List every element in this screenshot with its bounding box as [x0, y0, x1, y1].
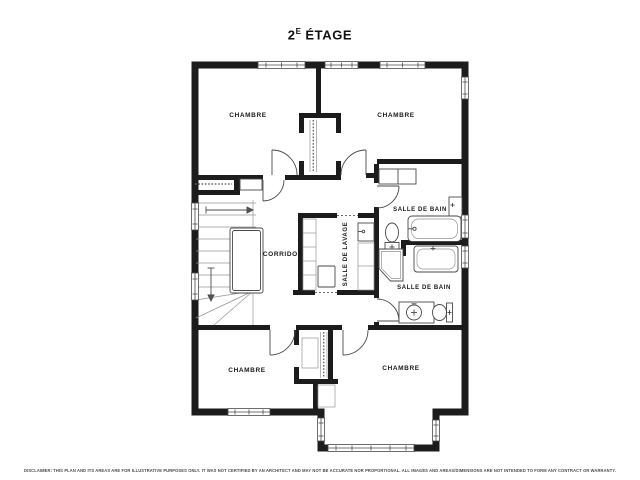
laundry-fixtures — [303, 219, 374, 290]
window — [192, 273, 199, 300]
room-label-bathroom-top: SALLE DE BAIN — [393, 207, 447, 213]
door-bedroom-bottom-left — [270, 330, 295, 355]
disclaimer-text: DISCLAIMER: THIS PLAN AND ITS AREAS ARE … — [24, 468, 616, 473]
door-bathroom-bottom — [377, 299, 399, 321]
window — [328, 445, 414, 452]
door-bathroom-top — [377, 186, 399, 208]
window — [462, 77, 469, 99]
vanity-sink — [399, 302, 434, 323]
bathtub — [408, 216, 461, 242]
room-label-bedroom-top-right: CHAMBRE — [377, 112, 414, 119]
window — [380, 62, 425, 69]
closet-shelf — [302, 338, 318, 368]
door-bedroom-top-left — [272, 150, 297, 175]
window — [325, 62, 358, 69]
closets — [195, 120, 335, 407]
vanity-cabinet — [379, 169, 416, 184]
closet-top-center — [310, 120, 317, 172]
closet-small — [318, 385, 335, 407]
room-label-corridor: CORRIDOR — [263, 251, 303, 258]
closet-bottom-center — [302, 332, 327, 378]
door-bedroom-bottom-right — [343, 330, 368, 355]
window — [318, 418, 325, 441]
shower — [414, 246, 458, 272]
door-hall-closet — [263, 180, 284, 201]
laundry-sink — [358, 223, 374, 241]
staircase — [196, 200, 263, 325]
laundry-counter — [358, 243, 374, 290]
floor-plan-page: 2E ÉTAGE — [0, 0, 640, 480]
window — [462, 215, 469, 238]
window — [192, 203, 199, 230]
room-label-bedroom-bottom-left: CHAMBRE — [228, 367, 265, 374]
room-label-bedroom-top-left: CHAMBRE — [229, 112, 266, 119]
closet-shelf — [240, 179, 262, 190]
toilet — [433, 303, 453, 322]
room-label-bedroom-bottom-right: CHAMBRE — [382, 365, 419, 372]
sink — [449, 197, 462, 217]
toilet — [385, 223, 399, 252]
linen-shelves — [303, 219, 316, 290]
window — [228, 409, 270, 416]
window — [462, 246, 469, 268]
window — [433, 420, 440, 441]
window — [258, 62, 305, 69]
door-bedroom-top-right — [341, 150, 366, 175]
room-label-laundry: SALLE DE LAVAGE — [343, 222, 349, 286]
room-label-bathroom-bottom: SALLE DE BAIN — [397, 285, 451, 291]
stairwell-opening — [230, 228, 263, 293]
bathroom-fixtures — [379, 169, 462, 323]
washer — [318, 266, 335, 287]
floor-plan-drawing: CHAMBRE CHAMBRE CHAMBRE CHAMBRE SALLE DE… — [0, 0, 640, 480]
corner-shower — [379, 249, 403, 281]
